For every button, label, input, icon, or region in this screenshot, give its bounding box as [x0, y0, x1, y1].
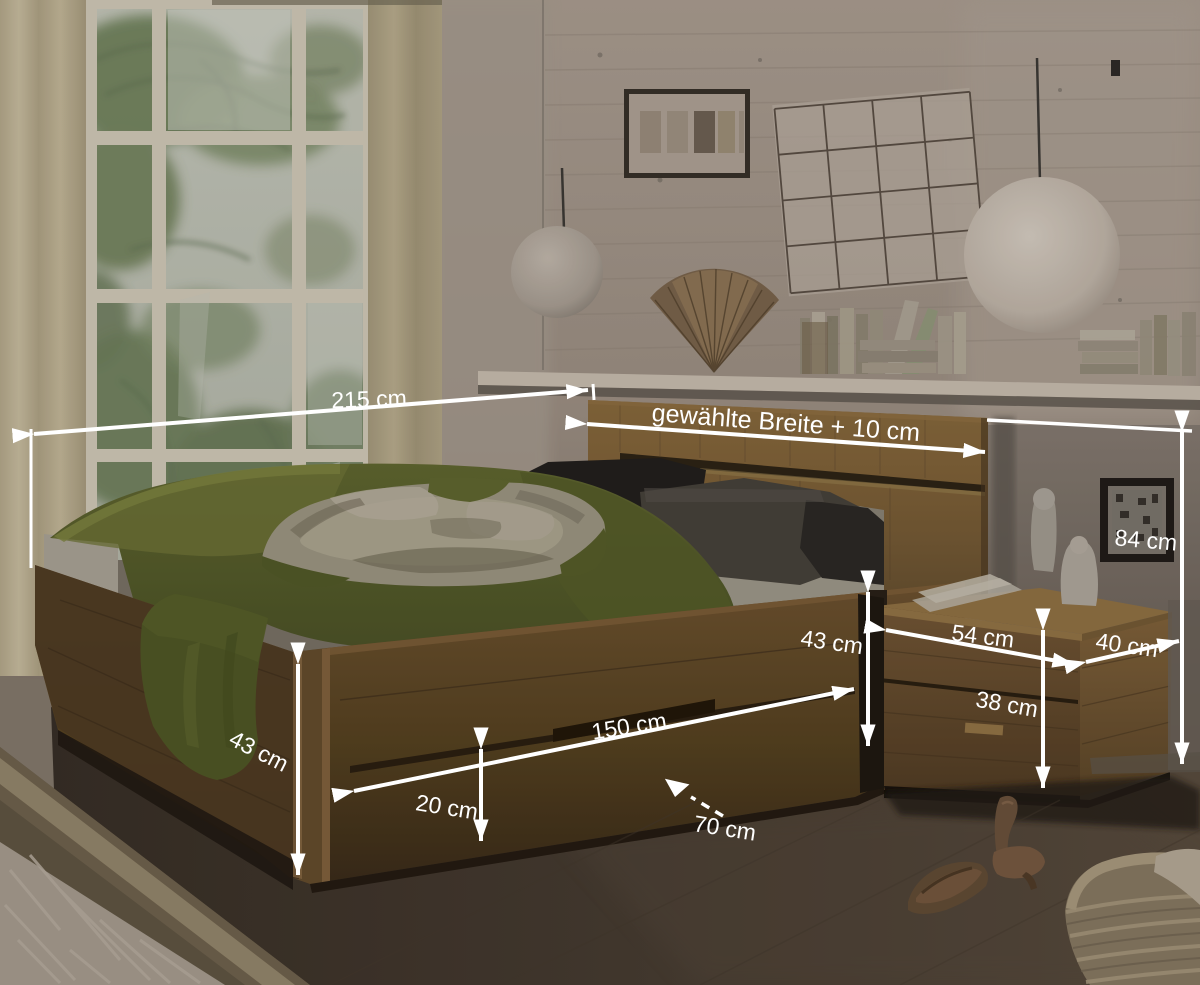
- svg-text:215 cm: 215 cm: [331, 385, 407, 414]
- svg-text:84 cm: 84 cm: [1114, 524, 1179, 555]
